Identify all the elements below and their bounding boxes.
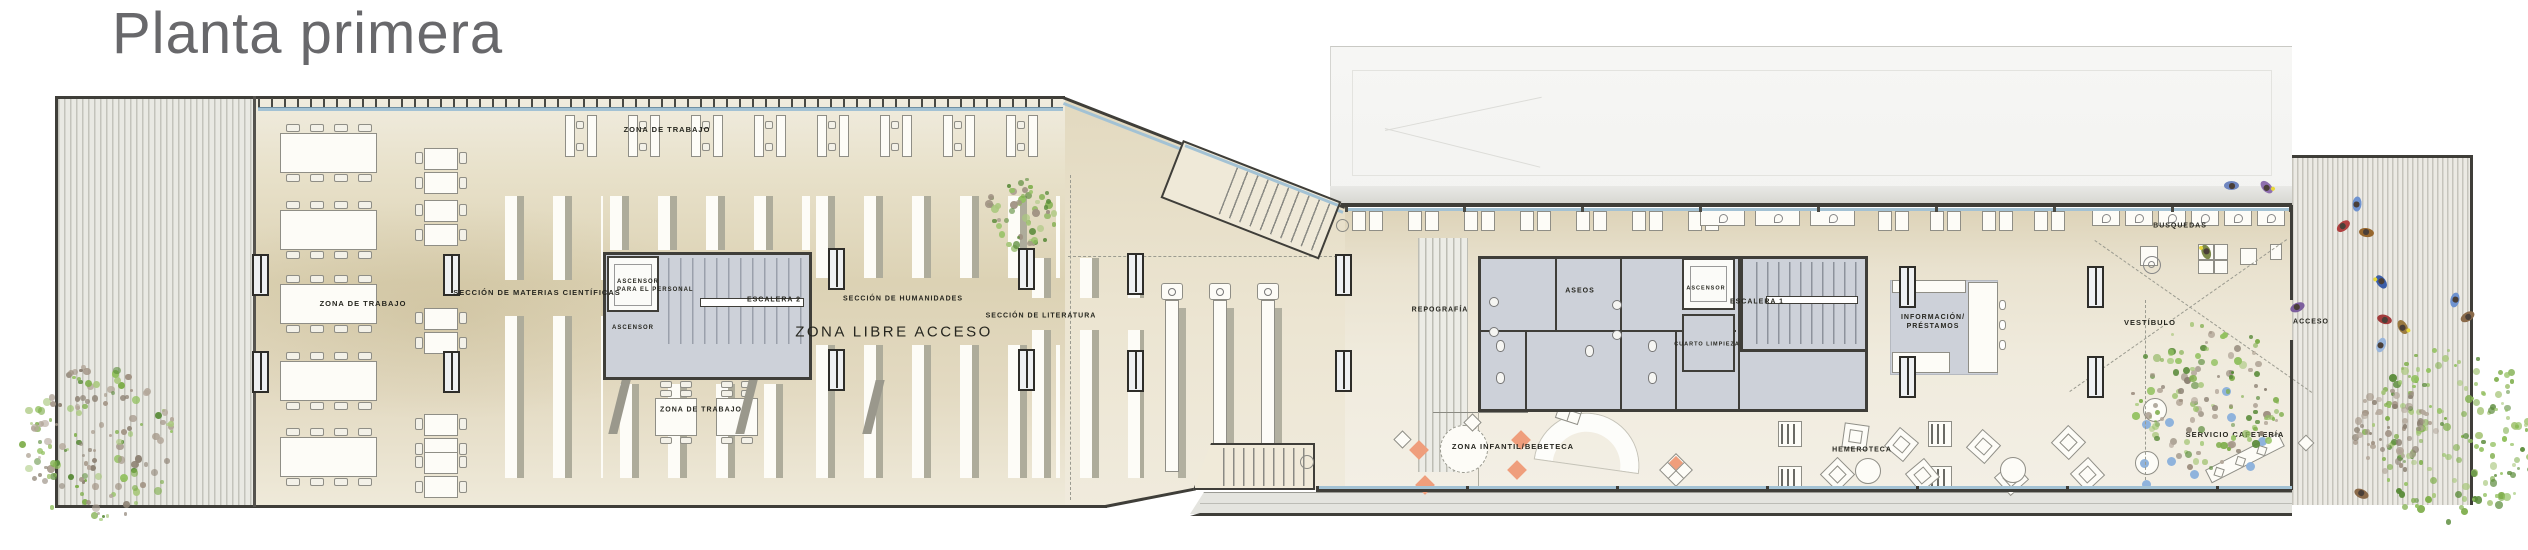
column [2087,266,2104,308]
tree-foliage-dot [68,474,74,480]
tree-foliage-dot [2412,446,2419,453]
tree-foliage-dot [2376,397,2381,402]
column-divider [1907,358,1909,395]
column [828,248,845,290]
label-ascensor-para-el-personal: ASCENSOR PARA EL PERSONAL [617,279,694,295]
tree-foliage-dot [2255,420,2259,424]
tree-foliage-dot [1028,185,1033,190]
tree-foliage-dot [2517,467,2520,470]
tree-foliage-dot [2265,437,2272,444]
tree-foliage-dot [83,368,90,375]
tree-foliage-dot [2510,379,2514,383]
tree-foliage-dot [2410,391,2414,395]
person-head [2354,201,2360,207]
chair-nub [576,121,584,129]
tree-foliage-dot [2229,375,2233,379]
column [2087,356,2104,398]
tree-foliage-dot [1018,180,1024,186]
tree-foliage-dot [2273,397,2279,403]
chair-nub [358,251,372,259]
chair-nub [334,124,348,132]
chair-nub [358,174,372,182]
tree-foliage-dot [92,395,99,402]
tree-foliage-dot [49,394,55,400]
tree-foliage-dot [86,500,91,505]
infantil-shelf-line [1433,412,1528,413]
tree-foliage-dot [2167,358,2174,365]
chair-nub [310,124,324,132]
tree-foliage-dot [2184,439,2190,445]
tree-foliage-dot [49,418,52,421]
tree-foliage-dot [144,388,151,395]
tree-foliage-dot [140,482,145,487]
chair-nub [660,381,672,388]
wall-shelf [1632,211,1646,231]
tree-foliage-dot [170,430,173,433]
person-head [2452,297,2459,304]
tree-foliage-dot [124,512,127,515]
tree-foliage-dot [1044,213,1050,219]
tree-foliage-dot [109,494,113,498]
tree-foliage-dot [2360,424,2364,428]
tree-foliage-dot [2490,462,2497,469]
label-acceso: ACCESO [2293,317,2329,326]
tree-foliage-dot [2252,440,2259,447]
magazine-rack [1778,421,1802,447]
tree-foliage-dot [2387,426,2390,429]
column [1335,350,1352,392]
tree-foliage-dot [32,476,37,481]
tree-foliage-dot [2147,387,2154,394]
tree-foliage-dot [140,423,143,426]
tree-connector [984,177,1060,253]
tree-foliage-dot [2155,410,2160,415]
tree-foliage-dot [2154,436,2160,442]
square-table [424,172,458,194]
chair-nub [358,201,372,209]
tree-foliage-dot [2426,368,2431,373]
stacks-cientificas-b [505,316,603,478]
chair-nub [891,143,899,151]
chair-nub [828,143,836,151]
tree-foliage-dot [997,218,1001,222]
chair-nub [415,229,423,241]
carrel-lamp [1257,283,1279,300]
tree-foliage-dot [38,407,45,414]
chair-nub [459,229,467,241]
tree-foliage-dot [38,440,42,444]
tree-foliage-dot [102,515,106,519]
window-desk [713,115,723,157]
square-table [424,200,458,222]
chair-nub [459,312,467,324]
tree-foliage-dot [2145,412,2152,419]
chair-nub [286,275,300,283]
window-desk [817,115,827,157]
chair-nub [1017,121,1025,129]
tree-foliage-dot [2396,439,2403,446]
column-divider [836,250,838,287]
tree-foliage-dot [67,405,74,412]
tree-foliage-dot [2505,409,2508,412]
column-divider [2095,268,2097,305]
tree-foliage-dot [2186,427,2192,433]
floor-plan-canvas: Planta primera ZONA DE TRABAJOZONA DE TR… [0,0,2528,550]
tree-foliage-dot [2512,463,2516,467]
stacks-under-core [620,384,810,478]
tree-foliage-dot [82,404,87,409]
tree-foliage-dot [1029,190,1033,194]
tree-foliage-dot [168,421,173,426]
chair-nub [415,456,423,468]
tree-foliage-dot [2483,480,2488,485]
chair-nub [721,381,733,388]
tree-foliage-dot [2401,367,2404,370]
armchair-seat [2078,465,2096,483]
tree-foliage-dot [2236,449,2241,454]
chair-nub [828,121,836,129]
wall-shelf [1947,211,1961,231]
tree-foliage-dot [996,223,1002,229]
tree-foliage-dot [2403,424,2408,429]
chair-nub [286,428,300,436]
chair-nub [415,204,423,216]
chair-nub [765,143,773,151]
tree-foliage-dot [2171,333,2174,336]
window-desk [587,115,597,157]
tree-foliage-dot [2229,404,2234,409]
carrel-lamp [1161,283,1183,300]
window-desk [650,115,660,157]
sink-icon [1612,300,1622,310]
tree-foliage-dot [1032,209,1040,217]
tree-foliage-dot [104,393,107,396]
tree-foliage-dot [2139,399,2143,403]
tree-foliage-dot [154,487,162,495]
tree-foliage-dot [2376,409,2382,415]
tree-foliage-dot [1046,199,1051,204]
tree-foliage-dot [41,420,48,427]
tree-foliage-dot [2181,373,2189,381]
tree-foliage-dot [2366,456,2370,460]
tree-foliage-dot [93,381,100,388]
tree-foliage-dot [2524,418,2528,425]
tree-foliage-dot [2372,400,2377,405]
tree-foliage-dot [127,426,132,431]
tree-foliage-dot [2487,500,2494,507]
tree-foliage-dot [50,401,56,407]
tree-foliage-dot [50,473,57,480]
tree-foliage-dot [2195,353,2201,359]
tree-foliage-dot [151,469,158,476]
chair-nub [721,437,733,444]
tree-foliage-dot [2274,409,2279,414]
column-divider [1026,351,1028,388]
tree-foliage-dot [2176,453,2182,459]
tree-foliage-dot [2506,416,2510,420]
tree-foliage-dot [2443,423,2451,431]
column-divider [1135,352,1137,389]
tree-foliage-dot [2481,440,2486,445]
tree-foliage-dot [2179,399,2182,402]
chair-nub [639,143,647,151]
pc-icon [2234,214,2243,223]
chair-nub [459,418,467,430]
tree-foliage-dot [2473,368,2480,375]
chair-nub [459,204,467,216]
chair-nub [334,201,348,209]
tree-foliage-dot [25,407,32,414]
tree-foliage-dot [2189,375,2197,383]
tree-foliage-dot [2414,377,2419,382]
tree-foliage-dot [2482,392,2486,396]
tree-foliage-dot [2494,408,2498,412]
column [443,351,460,393]
column [252,254,269,296]
column-divider [1135,255,1137,292]
wall-shelf [1352,211,1366,231]
armchair-seat [1848,429,1863,444]
chair-nub [415,312,423,324]
info-stool [1999,320,2006,330]
tree-foliage-dot [79,442,83,446]
tree-foliage-dot [155,412,162,419]
tree-foliage-dot [74,433,77,436]
tree-foliage-dot [995,203,1001,209]
tree-foliage-dot [2255,361,2262,368]
chair-nub [415,152,423,164]
column [1127,253,1144,295]
chair-nub [358,428,372,436]
window-desk [839,115,849,157]
label-seccion-materias-cientificas: SECCIÓN DE MATERIAS CIENTÍFICAS [453,288,621,298]
label-zona-trabajo-top: ZONA DE TRABAJO [624,125,711,135]
left-glazing-ticks [258,98,1063,107]
column [1335,254,1352,296]
long-table [280,133,377,173]
tree-foliage-dot [2264,388,2267,391]
tree-foliage-dot [2382,468,2388,474]
tree-foliage-dot [2500,472,2503,475]
tree-foliage-dot [2505,384,2510,389]
chair-nub [358,275,372,283]
tree-foliage-dot [2209,466,2213,470]
tree-foliage-dot [2490,479,2497,486]
tree-foliage-dot [111,391,116,396]
tree-foliage-dot [2254,371,2260,377]
tree-foliage-dot [2256,396,2260,400]
aseos-part-3 [1525,332,1527,410]
bottom-mullions [1316,486,2292,491]
tree-foliage-dot [2411,498,2415,502]
window-desk [943,115,953,157]
window-desk [902,115,912,157]
tree-foliage-dot [2193,458,2199,464]
chair-nub [891,121,899,129]
window-desk [628,115,638,157]
chair-nub [286,478,300,486]
tree-foliage-dot [2479,447,2484,452]
tree-foliage-dot [2253,403,2258,408]
shelf-cell-orange [1669,456,1683,470]
sink-icon [1489,297,1499,307]
tree-foliage-dot [2215,389,2219,393]
tree-foliage-dot [2228,441,2236,449]
person-head [2229,183,2235,189]
chair-nub [286,251,300,259]
tree-foliage-dot [1051,210,1058,217]
chair-nub [680,437,692,444]
wall-shelf [1520,211,1534,231]
tree-foliage-dot [1004,218,1009,223]
label-ascensor-izquierdo: ASCENSOR [612,325,654,333]
chair-nub [358,478,372,486]
chair-nub [741,437,753,444]
tree-foliage-dot [92,458,97,463]
tree-foliage-dot [2407,436,2411,440]
tree-foliage-dot [2502,436,2507,441]
tree-foliage-dot [992,219,997,224]
tree-foliage-dot [2198,382,2204,388]
wall-shelf [1982,211,1996,231]
tree-foliage-dot [115,430,119,434]
square-table-unit [424,452,458,498]
chair-nub [765,121,773,129]
tree-foliage-dot [2168,349,2174,355]
tree-foliage-dot [93,449,96,452]
tree-foliage-dot [2389,374,2397,382]
tree-foliage-dot [2503,493,2511,501]
tree-foliage-dot [1021,194,1025,198]
window-desk [965,115,975,157]
tree-foliage-dot [2454,364,2457,367]
tree-foliage-dot [130,389,133,392]
label-zona-trabajo-inferior: ZONA DE TRABAJO [660,405,742,414]
tree-foliage-dot [121,429,127,435]
wall-shelf [1649,211,1663,231]
label-ascensor-derecho: ASCENSOR [1686,285,1725,292]
tree-foliage-dot [48,444,52,448]
label-escalera-2: ESCALERA 2 [747,295,801,304]
tree-foliage-dot [2475,432,2482,439]
tree-foliage-dot [2247,437,2252,442]
wc-icon [1648,340,1657,352]
tree-foliage-dot [2220,442,2227,449]
tree-foliage-dot [2179,350,2184,355]
tree-foliage-dot [2405,403,2413,411]
tree-foliage-dot [2366,393,2374,401]
window-desk [565,115,575,157]
tree-foliage-dot [19,441,26,448]
tree-foliage-dot [2404,482,2409,487]
column [1018,349,1035,391]
chair-nub [310,201,324,209]
chair-nub [358,325,372,333]
tree-foliage-dot [1009,188,1015,194]
chair-nub [286,352,300,360]
chair-nub [415,337,423,349]
tree-foliage-dot [2495,494,2498,497]
armchair-seat [1913,466,1931,484]
tree-foliage-dot [125,374,132,381]
armchair-seat [1828,465,1846,483]
tree-foliage-dot [2498,370,2503,375]
tree-foliage-dot [2231,435,2236,440]
tree-foliage-dot [2220,460,2224,464]
dash-horizontal-connector [1068,256,1342,257]
tree-foliage-dot [2490,442,2496,448]
tree-foliage-dot [2457,360,2461,364]
round-table [2000,457,2026,483]
tree-foliage-dot [2386,444,2390,448]
tree-foliage-dot [2220,334,2225,339]
square-table [424,148,458,170]
tree-foliage-dot [160,480,164,484]
label-aseos: ASEOS [1565,286,1595,295]
tree-foliage-dot [2396,447,2404,455]
tree-vestibule [2130,320,2286,476]
tree-foliage-dot [2154,420,2157,423]
tree-foliage-dot [2200,441,2205,446]
tree-foliage-dot [2279,412,2284,417]
tree-foliage-dot [1046,210,1050,214]
tree-foliage-dot [2157,388,2163,394]
tree-foliage-dot [132,396,140,404]
tree-foliage-dot [84,461,89,466]
tree-foliage-dot [2228,352,2234,358]
tree-foliage-dot [77,377,81,381]
column-divider [1343,352,1345,389]
tree-foliage-dot [1026,221,1031,226]
tree-foliage-dot [99,518,103,522]
tree-foliage-dot [115,483,122,490]
chair-nub [286,201,300,209]
tree-foliage-dot [2231,423,2235,427]
chair-nub [286,325,300,333]
tree-foliage-dot [75,485,79,489]
info-stool [1999,300,2006,310]
tree-foliage-dot [2453,444,2460,451]
wall-shelf [1537,211,1551,231]
window-desk [776,115,786,157]
column [1018,248,1035,290]
tree-foliage-dot [2435,362,2442,369]
label-zona-infantil: ZONA INFANTIL/BEBETECA [1452,442,1574,452]
chair-nub [459,481,467,493]
pc-icon [2102,214,2111,223]
tree-foliage-dot [47,474,51,478]
tree-foliage-dot [91,430,95,434]
tree-foliage-dot [2455,491,2462,498]
chair-nub [334,352,348,360]
tree-foliage-dot [2404,362,2409,367]
tree-foliage-dot [2393,392,2400,399]
chair-nub [702,143,710,151]
tree-foliage-dot [160,420,166,426]
tree-foliage-dot [31,424,39,432]
tree-foliage-dot [2464,386,2469,391]
tree-foliage-dot [1052,222,1056,226]
carrel-lamp [1209,283,1231,300]
square-table-unit [424,200,458,246]
chair-nub [1017,143,1025,151]
chair-nub [660,390,672,397]
tree-foliage-dot [1013,241,1021,249]
tree-foliage-dot [2446,519,2451,524]
tree-foliage-dot [2504,372,2510,378]
square-table [424,224,458,246]
tree-foliage-dot [92,504,100,512]
